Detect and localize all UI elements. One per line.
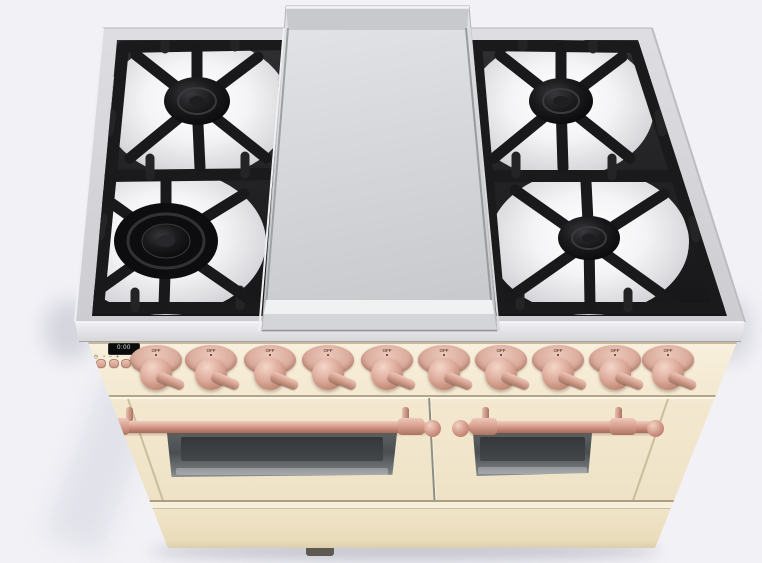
- knob-off-label: OFF: [130, 348, 182, 353]
- handle-finial: [452, 420, 469, 437]
- right-door-handle: [451, 405, 671, 445]
- handle-bar: [98, 421, 428, 433]
- knob-indicator-dot: [210, 354, 212, 356]
- burner-cap-right-rear: [529, 78, 593, 124]
- knob-off-label: OFF: [302, 348, 354, 353]
- handle-finial: [647, 420, 664, 437]
- handle-collar: [610, 418, 636, 435]
- knob-off-label: OFF: [185, 348, 237, 353]
- range-product-render: 0:00 ▣ ◷ ◔ − + OFF OFF: [0, 0, 762, 563]
- handle-collar: [471, 418, 497, 435]
- handle-finial: [424, 420, 441, 437]
- clock-button-2: [96, 359, 106, 368]
- knob-indicator-dot: [500, 354, 502, 356]
- right-oven-window-reflection: [478, 467, 587, 474]
- knob-indicator-dot: [155, 354, 157, 356]
- storage-drawer-front: [75, 509, 745, 548]
- control-panel-seam-highlight: [75, 397, 745, 399]
- knob-indicator-dot: [269, 354, 271, 356]
- knob-off-label: OFF: [244, 348, 296, 353]
- knob-off-label: OFF: [642, 348, 694, 353]
- knob-indicator-dot: [557, 354, 559, 356]
- left-door-handle: [81, 405, 443, 445]
- knob-indicator-dot: [443, 354, 445, 356]
- handle-collar: [398, 418, 424, 435]
- knob-off-label: OFF: [532, 348, 584, 353]
- knob-indicator-dot: [614, 354, 616, 356]
- range-front: 0:00 ▣ ◷ ◔ − + OFF OFF: [75, 342, 745, 552]
- knob-off-label: OFF: [475, 348, 527, 353]
- knob-off-label: OFF: [589, 348, 641, 353]
- knob-indicator-dot: [667, 354, 669, 356]
- clock-button-3: [109, 359, 119, 368]
- left-oven-window-reflection: [176, 468, 388, 475]
- knob-indicator-dot: [386, 354, 388, 356]
- panel-top-seam: [75, 342, 745, 344]
- burner-cap-left-rear: [164, 77, 230, 125]
- burner-cap-left-front-double: [114, 203, 218, 279]
- knob-off-label: OFF: [361, 348, 413, 353]
- knob-indicator-dot: [327, 354, 329, 356]
- griddle-front-highlight: [264, 300, 494, 314]
- burner-cap-right-front: [558, 216, 620, 260]
- griddle: [259, 6, 499, 331]
- knob-off-label: OFF: [418, 348, 470, 353]
